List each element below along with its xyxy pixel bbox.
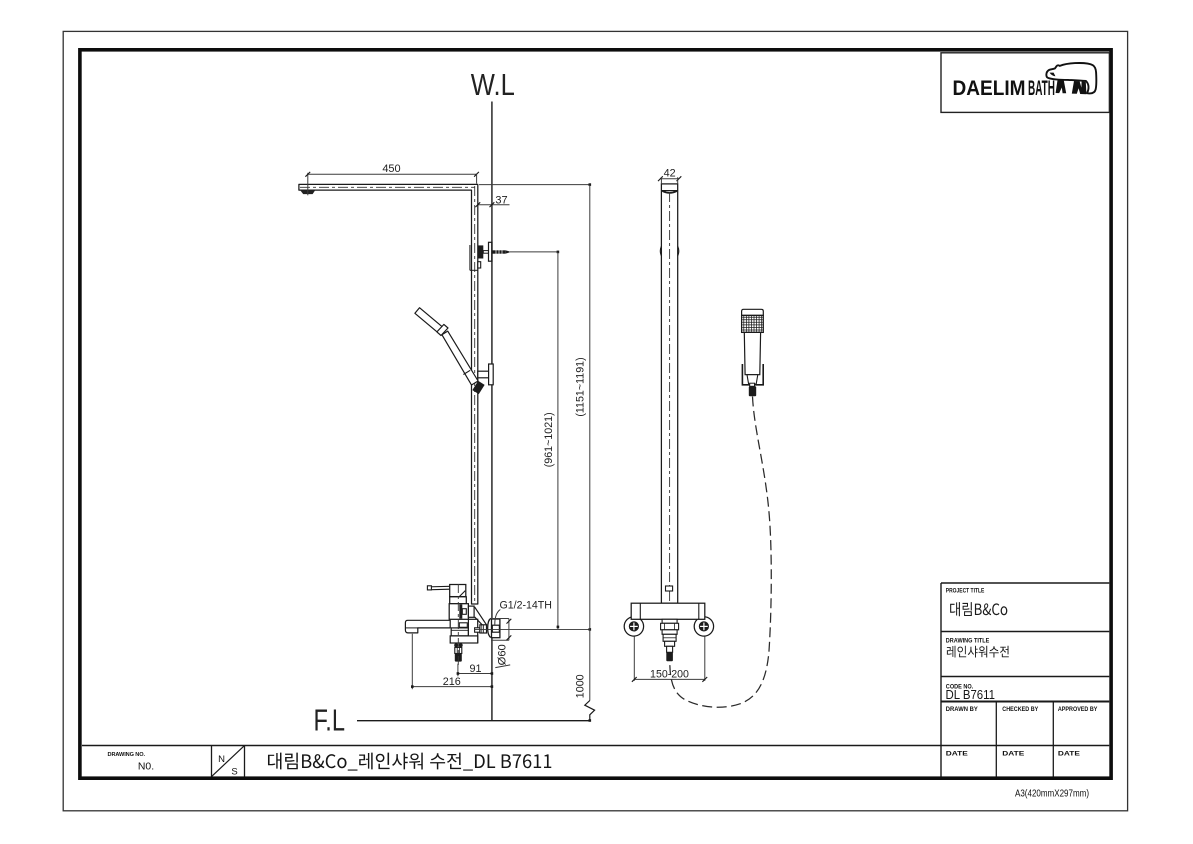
svg-text:DAELIM: DAELIM (953, 76, 1026, 100)
svg-text:(1151~1191): (1151~1191) (574, 357, 586, 416)
svg-text:DATE: DATE (1058, 750, 1081, 757)
svg-text:DATE: DATE (1002, 750, 1025, 757)
svg-text:216: 216 (443, 676, 461, 688)
svg-text:450: 450 (382, 163, 400, 175)
svg-text:N0.: N0. (138, 762, 154, 773)
svg-text:42: 42 (664, 168, 676, 180)
svg-text:DL B7611: DL B7611 (946, 688, 996, 702)
svg-text:Ø60: Ø60 (496, 644, 508, 665)
svg-text:G1/2-14TH: G1/2-14TH (500, 599, 552, 611)
svg-text:37: 37 (495, 194, 507, 206)
svg-text:W.L: W.L (471, 67, 515, 102)
svg-text:N: N (218, 754, 225, 765)
svg-text:DRAWING TITLE: DRAWING TITLE (946, 637, 990, 644)
svg-text:A3(420mmX297mm): A3(420mmX297mm) (1015, 788, 1089, 799)
svg-text:DATE: DATE (946, 750, 969, 757)
svg-text:CHECKED BY: CHECKED BY (1002, 706, 1038, 713)
svg-text:1000: 1000 (575, 674, 587, 698)
svg-text:F.L: F.L (314, 703, 346, 738)
svg-text:DRAWN BY: DRAWN BY (946, 706, 979, 713)
svg-text:PROJECT TITLE: PROJECT TITLE (946, 588, 985, 595)
svg-text:(961~1021): (961~1021) (543, 412, 555, 467)
svg-text:S: S (231, 767, 237, 778)
svg-text:91: 91 (469, 663, 481, 675)
svg-text:DRAWING NO.: DRAWING NO. (108, 752, 146, 758)
svg-text:APPROVED BY: APPROVED BY (1058, 706, 1098, 713)
